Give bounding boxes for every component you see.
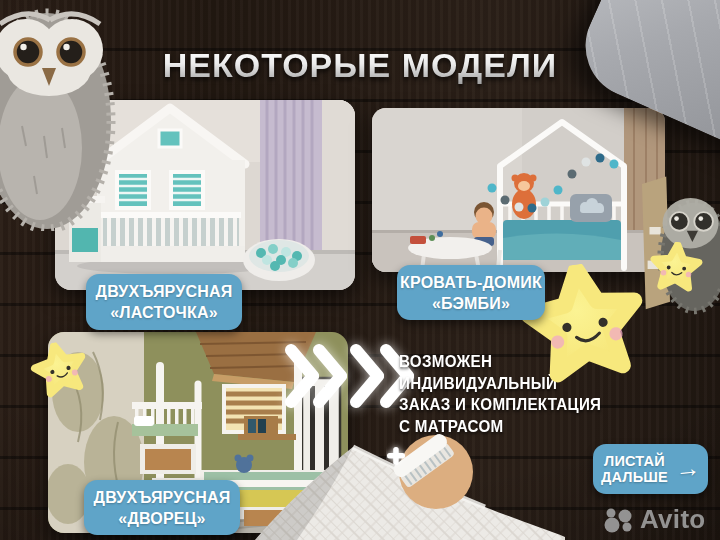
model-label-dvorets: ДВУХЪЯРУСНАЯ «ДВОРЕЦ»: [84, 480, 240, 535]
note-line: ЗАКАЗ И КОМПЛЕКТАЦИЯ: [399, 394, 601, 416]
model-name-line: КРОВАТЬ-ДОМИК: [400, 272, 542, 293]
star-plush-small-icon: [646, 240, 705, 296]
avito-logo-icon: [602, 505, 636, 535]
bambi-room-illustration: [372, 108, 665, 272]
avito-watermark-text: Avito: [640, 504, 706, 535]
model-name-line: «БЭМБИ»: [432, 293, 510, 314]
model-label-lastochka: ДВУХЪЯРУСНАЯ «ЛАСТОЧКА»: [86, 274, 242, 330]
model-name-line: «ДВОРЕЦ»: [118, 508, 205, 529]
photo-house-bed-bambi: [372, 108, 665, 272]
model-name-line: «ЛАСТОЧКА»: [110, 302, 218, 323]
model-name-line: ДВУХЪЯРУСНАЯ: [94, 487, 231, 508]
owl-plush-image: [0, 0, 117, 231]
mattress-image: [386, 430, 478, 512]
promo-collage: НЕКОТОРЫЕ МОДЕЛИ: [0, 0, 720, 540]
chevron-right-icon: [312, 344, 348, 408]
model-name-line: ДВУХЪЯРУСНАЯ: [96, 281, 233, 302]
model-label-bambi: КРОВАТЬ-ДОМИК «БЭМБИ»: [397, 265, 545, 320]
swipe-next-label: ЛИСТАЙ ДАЛЬШЕ: [601, 453, 668, 486]
swipe-next-button[interactable]: ЛИСТАЙ ДАЛЬШЕ →: [593, 444, 708, 494]
arrow-right-icon: →: [674, 458, 701, 477]
avito-watermark: Avito: [602, 504, 706, 535]
